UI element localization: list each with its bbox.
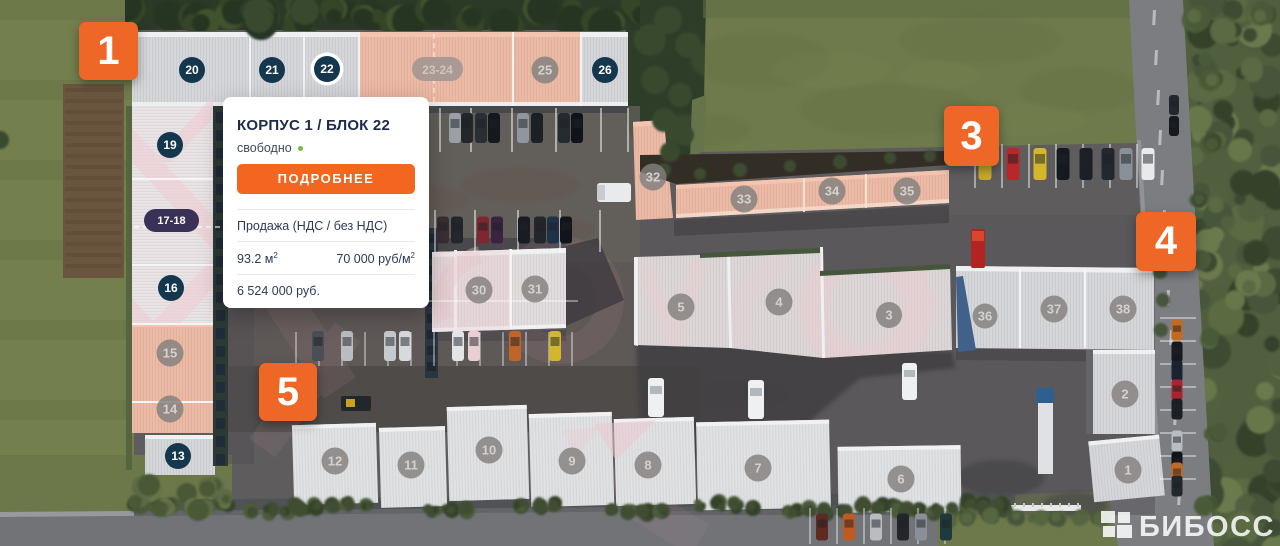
svg-text:22: 22 [320, 62, 334, 76]
svg-text:8: 8 [644, 458, 651, 473]
svg-text:21: 21 [265, 63, 279, 77]
svg-text:30: 30 [472, 283, 486, 298]
svg-text:4: 4 [775, 295, 783, 310]
svg-text:14: 14 [163, 402, 178, 417]
svg-text:7: 7 [754, 461, 761, 476]
svg-text:9: 9 [568, 454, 575, 469]
svg-text:26: 26 [598, 63, 612, 77]
svg-text:16: 16 [164, 281, 178, 295]
svg-text:23-24: 23-24 [422, 63, 453, 77]
svg-text:12: 12 [328, 454, 342, 469]
svg-text:19: 19 [163, 138, 177, 152]
svg-text:6: 6 [897, 472, 904, 487]
svg-text:11: 11 [404, 458, 418, 473]
svg-text:31: 31 [528, 282, 542, 297]
svg-text:20: 20 [185, 63, 199, 77]
svg-text:13: 13 [171, 449, 185, 463]
svg-text:34: 34 [825, 184, 840, 199]
svg-text:25: 25 [538, 63, 552, 78]
svg-text:1: 1 [1124, 463, 1131, 478]
svg-text:2: 2 [1121, 387, 1128, 402]
svg-text:15: 15 [163, 346, 177, 361]
svg-text:38: 38 [1116, 302, 1130, 317]
svg-text:10: 10 [482, 443, 496, 458]
svg-text:35: 35 [900, 184, 914, 199]
svg-text:3: 3 [885, 308, 892, 323]
svg-text:5: 5 [677, 300, 684, 315]
svg-text:32: 32 [646, 170, 660, 185]
svg-text:33: 33 [737, 192, 751, 207]
svg-text:37: 37 [1047, 302, 1061, 317]
svg-text:17-18: 17-18 [157, 215, 185, 227]
svg-text:36: 36 [978, 309, 992, 324]
